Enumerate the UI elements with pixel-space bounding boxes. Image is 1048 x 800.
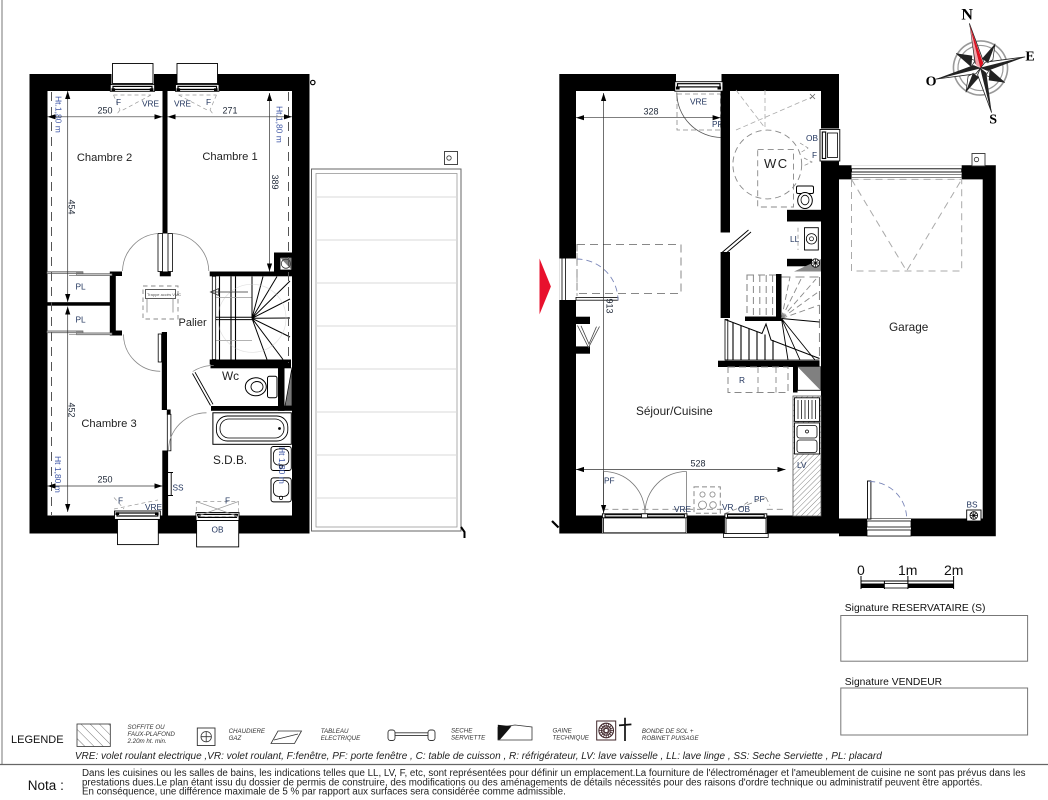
svg-text:SECHE: SECHE bbox=[451, 728, 473, 735]
svg-text:SOFFITE OU: SOFFITE OU bbox=[128, 724, 166, 731]
svg-text:Palier: Palier bbox=[179, 317, 207, 329]
svg-text:250: 250 bbox=[97, 106, 112, 116]
svg-text:1m: 1m bbox=[898, 562, 917, 578]
svg-text:PL: PL bbox=[76, 282, 87, 292]
svg-text:En conséquence, une différence: En conséquence, une différence maximale … bbox=[82, 787, 566, 798]
svg-text:TECHNIQUE: TECHNIQUE bbox=[553, 735, 590, 742]
svg-text:VRE: VRE bbox=[690, 97, 708, 107]
svg-text:CHAUDIERE: CHAUDIERE bbox=[229, 728, 266, 735]
svg-text:GAINE: GAINE bbox=[553, 728, 573, 735]
svg-text:Chambre 2: Chambre 2 bbox=[77, 152, 132, 164]
svg-text:LEGENDE: LEGENDE bbox=[11, 734, 64, 746]
svg-text:528: 528 bbox=[690, 459, 705, 469]
svg-text:FAUX-PLAFOND: FAUX-PLAFOND bbox=[128, 731, 176, 738]
svg-text:VRE: VRE bbox=[145, 502, 163, 512]
svg-text:Ht.1,80 m: Ht.1,80 m bbox=[275, 106, 285, 143]
svg-text:R: R bbox=[739, 375, 745, 385]
svg-text:PF: PF bbox=[604, 476, 615, 486]
svg-text:Signature VENDEUR: Signature VENDEUR bbox=[845, 677, 942, 688]
svg-text:Trappe accès VMC: Trappe accès VMC bbox=[147, 292, 181, 297]
svg-text:F: F bbox=[116, 97, 121, 107]
svg-text:454: 454 bbox=[67, 199, 77, 214]
svg-text:TABLEAU: TABLEAU bbox=[321, 728, 349, 735]
svg-text:PL: PL bbox=[76, 315, 87, 325]
svg-text:VRE: volet roulant electrique: VRE: volet roulant electrique ,VR: volet… bbox=[75, 751, 882, 762]
svg-text:BS: BS bbox=[967, 500, 979, 510]
svg-text:Garage: Garage bbox=[889, 320, 929, 334]
svg-text:F: F bbox=[118, 496, 123, 506]
svg-text:F: F bbox=[225, 496, 230, 506]
svg-text:2.20m ht. min.: 2.20m ht. min. bbox=[127, 738, 167, 745]
svg-text:O: O bbox=[926, 74, 937, 89]
svg-text:271: 271 bbox=[222, 106, 237, 116]
svg-text:Nota :: Nota : bbox=[28, 778, 64, 793]
svg-text:Chambre 3: Chambre 3 bbox=[81, 418, 136, 430]
svg-text:VR: VR bbox=[722, 502, 734, 512]
svg-text:ROBINET PUISAGE: ROBINET PUISAGE bbox=[642, 735, 700, 742]
svg-text:VRE: VRE bbox=[174, 99, 192, 109]
svg-text:BONDE DE SOL +: BONDE DE SOL + bbox=[642, 728, 694, 735]
svg-text:Séjour/Cuisine: Séjour/Cuisine bbox=[636, 404, 713, 418]
svg-text:F: F bbox=[812, 150, 817, 160]
svg-text:OB: OB bbox=[212, 525, 224, 535]
svg-text:SERVIETTE: SERVIETTE bbox=[451, 735, 486, 742]
svg-text:OB: OB bbox=[806, 133, 818, 143]
svg-text:Chambre 1: Chambre 1 bbox=[202, 151, 257, 163]
svg-text:F: F bbox=[206, 97, 211, 107]
svg-text:VRE: VRE bbox=[142, 99, 160, 109]
svg-text:2m: 2m bbox=[944, 562, 963, 578]
svg-text:ELECTRIQUE: ELECTRIQUE bbox=[321, 735, 361, 742]
svg-text:PF: PF bbox=[754, 494, 765, 504]
svg-text:GAZ: GAZ bbox=[229, 735, 242, 742]
svg-text:S.D.B.: S.D.B. bbox=[213, 453, 247, 467]
svg-text:Signature RESERVATAIRE (S): Signature RESERVATAIRE (S) bbox=[845, 603, 986, 614]
svg-text:452: 452 bbox=[67, 402, 77, 417]
svg-text:Wc: Wc bbox=[222, 369, 239, 383]
svg-text:0: 0 bbox=[857, 562, 865, 578]
svg-text:328: 328 bbox=[643, 107, 658, 117]
svg-text:N: N bbox=[961, 7, 973, 24]
svg-text:913: 913 bbox=[605, 298, 615, 313]
svg-text:SS: SS bbox=[173, 483, 185, 493]
svg-text:WC: WC bbox=[764, 156, 789, 171]
svg-text:OB: OB bbox=[738, 504, 750, 514]
svg-text:Ht 1,80 m: Ht 1,80 m bbox=[277, 447, 287, 484]
svg-text:250: 250 bbox=[97, 475, 112, 485]
svg-text:S: S bbox=[989, 112, 997, 127]
svg-text:LV: LV bbox=[797, 460, 807, 470]
svg-text:E: E bbox=[1025, 50, 1034, 65]
svg-text:389: 389 bbox=[270, 174, 280, 189]
